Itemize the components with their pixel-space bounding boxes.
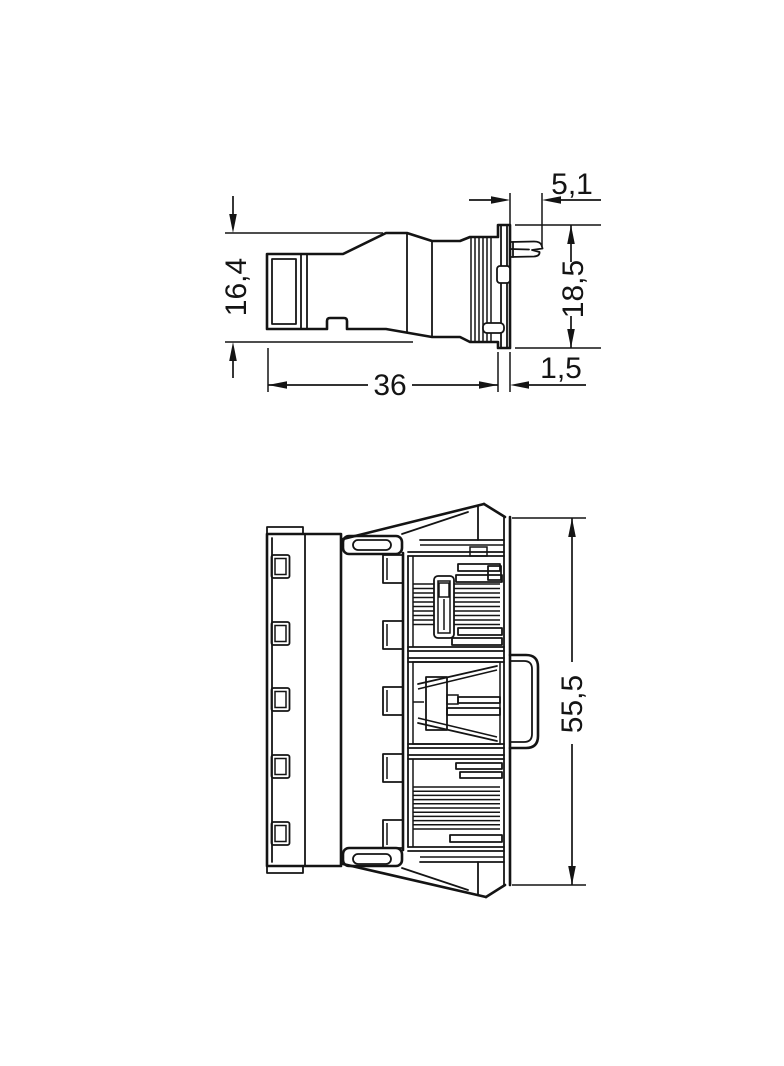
hook-top-slot xyxy=(353,540,391,550)
lever-diagonal xyxy=(418,723,497,741)
chamber-ribs xyxy=(413,787,500,829)
dimension-label: 36 xyxy=(373,369,406,402)
dim-16-4: 16,4 xyxy=(220,196,413,378)
chamber-top-bar xyxy=(460,772,502,778)
dim-18-5: 18,5 xyxy=(515,225,601,348)
lever-diagonal xyxy=(418,666,497,684)
dim-5-1: 5,1 xyxy=(469,168,601,246)
front-view-top-funnel xyxy=(343,504,505,545)
front-view-drawing: 55,5 xyxy=(267,504,589,897)
spine-tab xyxy=(383,687,403,715)
side-view-drawing: 16,4 5,1 18,5 xyxy=(220,168,601,402)
front-view-chamber-middle xyxy=(413,662,500,744)
front-view-bottom-funnel xyxy=(343,857,505,897)
spine-tab xyxy=(383,754,403,782)
chamber-ribs xyxy=(413,584,500,625)
dimension-label: 16,4 xyxy=(220,258,253,316)
chamber-bottom-bar xyxy=(450,835,502,842)
chamber-top-bar xyxy=(456,763,502,769)
lever-diagonal xyxy=(418,718,497,737)
lever-bar xyxy=(458,697,500,703)
lever-diagonal xyxy=(418,670,497,689)
spine-tab xyxy=(383,621,403,649)
arrowhead xyxy=(510,381,529,389)
funnel-apex-edge xyxy=(484,504,505,517)
chamber-top-bar-end xyxy=(488,566,501,580)
chamber-bottom-bar xyxy=(452,638,502,645)
latch-window-inner xyxy=(275,759,286,775)
dimension-label: 1,5 xyxy=(540,352,582,385)
front-view-chamber-top xyxy=(413,547,502,647)
arrowhead xyxy=(491,196,510,204)
funnel-slant-outer xyxy=(343,864,486,897)
dim-55-5: 55,5 xyxy=(512,518,589,885)
dimension-label: 55,5 xyxy=(556,675,589,733)
arrowhead xyxy=(567,329,575,348)
front-view-latch-handle xyxy=(510,655,538,748)
lever-bar xyxy=(447,708,500,715)
latch-window-inner xyxy=(275,826,286,842)
chamber-top-bar xyxy=(458,564,500,571)
dim-1-5: 1,5 xyxy=(510,352,586,392)
latch-window-inner xyxy=(275,559,286,575)
latch-window-inner xyxy=(275,626,286,642)
arrowhead xyxy=(229,342,237,361)
dimension-label: 18,5 xyxy=(557,260,590,318)
front-view-latch-windows xyxy=(272,555,290,845)
dimension-label: 5,1 xyxy=(551,168,593,201)
technical-drawing-page: 16,4 5,1 18,5 xyxy=(0,0,784,1066)
front-view-hooks xyxy=(343,536,402,866)
latch-handle-inner xyxy=(510,661,532,742)
arrowhead xyxy=(229,214,237,233)
side-view-bottom-tab xyxy=(483,323,504,333)
hook-bottom-slot xyxy=(353,854,391,864)
latch-handle-outline xyxy=(510,655,538,748)
chamber-bottom-bar xyxy=(458,628,502,635)
arrowhead xyxy=(567,225,575,244)
funnel-slant-outer xyxy=(343,504,484,539)
front-view-chamber-bottom xyxy=(413,759,502,847)
hook-top xyxy=(343,536,402,554)
side-view-body-outline xyxy=(267,225,510,348)
spine-tab xyxy=(383,820,403,848)
chamber-top-bar xyxy=(456,575,502,582)
front-view-spine xyxy=(383,553,408,850)
lever-step xyxy=(447,695,458,704)
side-view-cable-block xyxy=(272,259,296,324)
side-view-flange-window xyxy=(497,266,510,283)
funnel-apex-edge xyxy=(486,885,505,897)
spine-tab xyxy=(383,555,403,583)
arrowhead xyxy=(268,381,287,389)
arrowhead xyxy=(568,866,576,885)
arrowhead xyxy=(568,518,576,537)
front-view-latch-strip xyxy=(267,534,341,866)
dim-36: 36 xyxy=(268,348,498,402)
arrowhead xyxy=(479,381,498,389)
technical-drawing-canvas: 16,4 5,1 18,5 xyxy=(0,0,784,1066)
latch-window-inner xyxy=(275,692,286,708)
